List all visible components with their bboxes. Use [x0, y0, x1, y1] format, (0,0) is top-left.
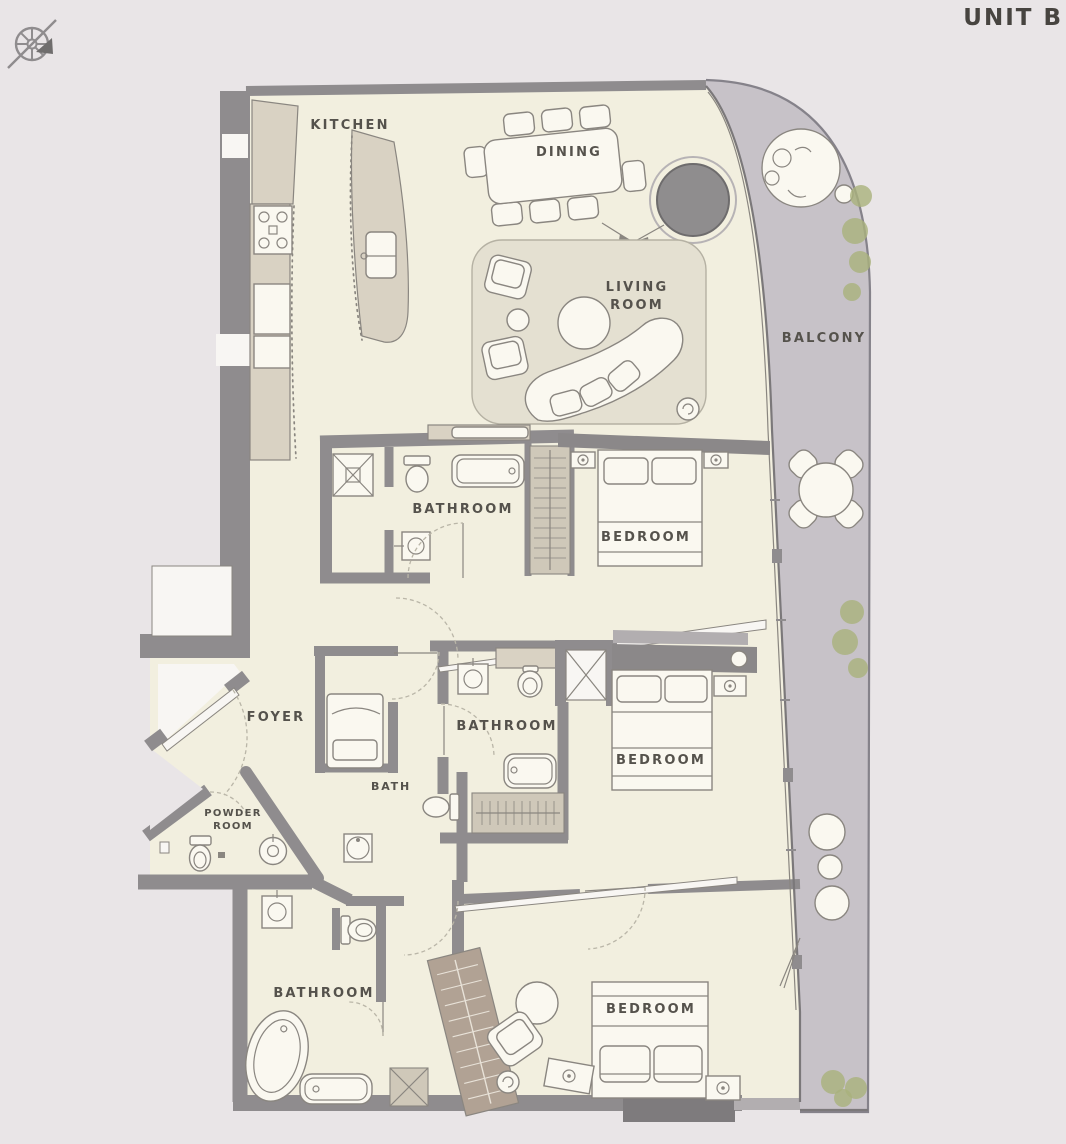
pillow — [333, 740, 377, 760]
pillow — [600, 1046, 650, 1082]
balcony-table — [799, 463, 853, 517]
kitchen-cabinet — [252, 100, 298, 204]
bathroom3-label: BATHROOM — [273, 986, 374, 1001]
toilet — [404, 456, 430, 492]
bathroom1-label: BATHROOM — [412, 502, 513, 517]
kitchen-label: KITCHEN — [310, 118, 389, 133]
floorplan-canvas: UNIT B — [0, 0, 1066, 1144]
closet-rail — [530, 446, 570, 574]
dining-label: DINING — [536, 145, 602, 160]
bathtub — [452, 455, 524, 487]
closet-rail — [472, 793, 564, 833]
armchair — [481, 335, 530, 381]
shelf-unit — [390, 1068, 428, 1106]
round-column — [657, 164, 729, 236]
window-post — [783, 768, 793, 782]
pillow — [654, 1046, 702, 1082]
sink — [344, 834, 372, 862]
nightstand — [704, 452, 728, 468]
bedroom3-label: BEDROOM — [606, 1002, 696, 1017]
nightstand — [706, 1076, 740, 1100]
bathtub — [300, 1074, 372, 1104]
powder-label-line2: ROOM — [213, 821, 253, 832]
nightstand — [714, 676, 746, 696]
wall-notch — [222, 134, 248, 158]
pillow — [604, 458, 648, 484]
living-label-line2: ROOM — [610, 298, 664, 313]
pillow — [652, 458, 696, 484]
living-label-line1: LIVING — [606, 280, 669, 295]
oven — [254, 336, 290, 368]
bedroom2-label: BEDROOM — [616, 753, 706, 768]
wall-notch — [216, 334, 252, 366]
tv — [452, 427, 528, 438]
unit-title: UNIT B — [963, 5, 1063, 31]
shaft — [555, 640, 617, 706]
bathtub — [504, 754, 556, 788]
bath-label: BATH — [371, 780, 411, 793]
side-table — [677, 398, 699, 420]
living-room-area — [472, 240, 706, 424]
bedroom1-label: BEDROOM — [601, 530, 691, 545]
wall-ledge — [734, 1098, 800, 1110]
pillow — [665, 676, 707, 702]
exterior-ledge — [152, 566, 232, 636]
shower — [333, 454, 373, 496]
pillow — [617, 676, 661, 702]
side-table — [497, 1071, 519, 1093]
coffee-table — [558, 297, 610, 349]
fridge — [254, 284, 290, 334]
toilet — [190, 836, 212, 871]
powder-label-line1: POWDER — [204, 808, 262, 819]
bed — [598, 450, 702, 566]
wall-light — [731, 651, 747, 667]
floorplan-page: UNIT B — [0, 0, 1066, 1144]
floor-drain — [218, 852, 225, 858]
nightstand — [571, 452, 595, 468]
dining-table — [483, 127, 623, 205]
window-post — [772, 549, 782, 563]
sink — [458, 658, 488, 694]
vanity — [496, 648, 558, 668]
sink — [262, 890, 292, 928]
wall — [246, 85, 706, 91]
bathroom2-label: BATHROOM — [456, 719, 557, 734]
shelf — [160, 842, 169, 853]
island-sink — [361, 232, 396, 278]
side-table — [507, 309, 529, 331]
balcony-label: BALCONY — [782, 331, 867, 346]
foyer-label: FOYER — [247, 710, 306, 725]
bed — [612, 670, 712, 790]
daybed — [327, 694, 383, 768]
stove — [254, 206, 292, 254]
bed — [592, 982, 708, 1098]
